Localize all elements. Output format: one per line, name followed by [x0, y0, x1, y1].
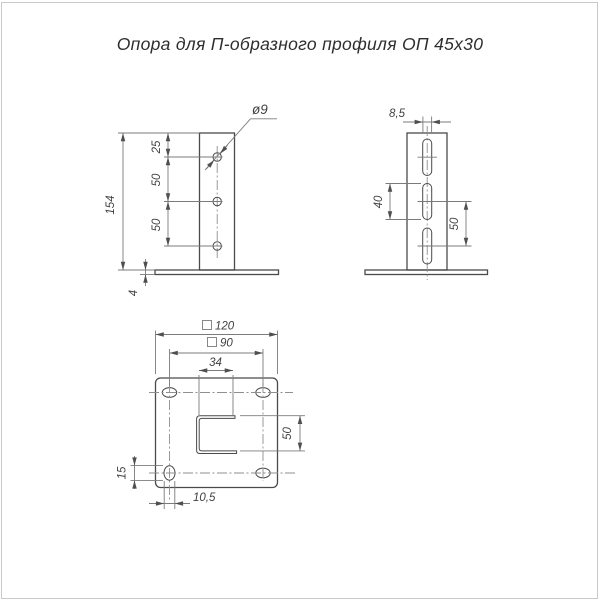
dim-top-to-hole: 25 [151, 133, 168, 157]
dim-label-25: 25 [151, 140, 163, 154]
callout-label-o9: ø9 [252, 102, 268, 117]
callout-hole-diameter: ø9 [205, 102, 277, 170]
plan-plate-outline [156, 378, 278, 488]
front-view: 154 25 50 50 4 ø9 [105, 102, 279, 296]
technical-drawing: Опора для П-образного профиля ОП 45х30 1… [0, 0, 600, 600]
page-border [2, 3, 598, 599]
dim-label-154: 154 [105, 195, 117, 214]
dim-label-50-plan: 50 [282, 427, 294, 440]
dim-total-height: 154 [105, 133, 123, 270]
dim-label-8-5: 8,5 [389, 108, 406, 120]
square-symbol [208, 338, 217, 347]
square-symbol [203, 321, 212, 330]
dim-slot-pitch: 50 [437, 202, 472, 247]
dim-channel-width: 34 [199, 357, 233, 415]
dim-label-10-5: 10,5 [193, 492, 216, 504]
plan-view: 120 90 34 50 [117, 321, 306, 510]
dim-hole-pitch-b: 50 [151, 202, 168, 247]
dim-slot-hole-width: 10,5 [149, 481, 216, 509]
dim-hole-pitch-a: 50 [151, 157, 168, 202]
drawing-canvas: Опора для П-образного профиля ОП 45х30 1… [0, 0, 600, 600]
drawing-title: Опора для П-образного профиля ОП 45х30 [117, 34, 484, 54]
dim-label-120: 120 [215, 321, 235, 333]
dim-base-thickness: 4 [128, 259, 146, 296]
dim-label-50-side: 50 [449, 217, 461, 230]
dim-slot-width: 8,5 [389, 108, 451, 133]
dim-label-4: 4 [128, 290, 140, 296]
side-base-plate [365, 270, 488, 275]
dim-slot-length: 40 [373, 184, 421, 220]
front-base-plate [155, 270, 279, 275]
dim-label-50a: 50 [151, 173, 163, 186]
side-view: 8,5 40 50 [365, 108, 488, 280]
dim-label-40: 40 [373, 195, 385, 208]
dim-label-50b: 50 [151, 218, 163, 231]
dim-channel-depth: 50 [240, 416, 305, 451]
dim-label-15: 15 [117, 466, 129, 479]
dim-label-90: 90 [220, 338, 233, 350]
plan-channel-profile [197, 416, 237, 454]
dim-label-34: 34 [209, 357, 222, 369]
